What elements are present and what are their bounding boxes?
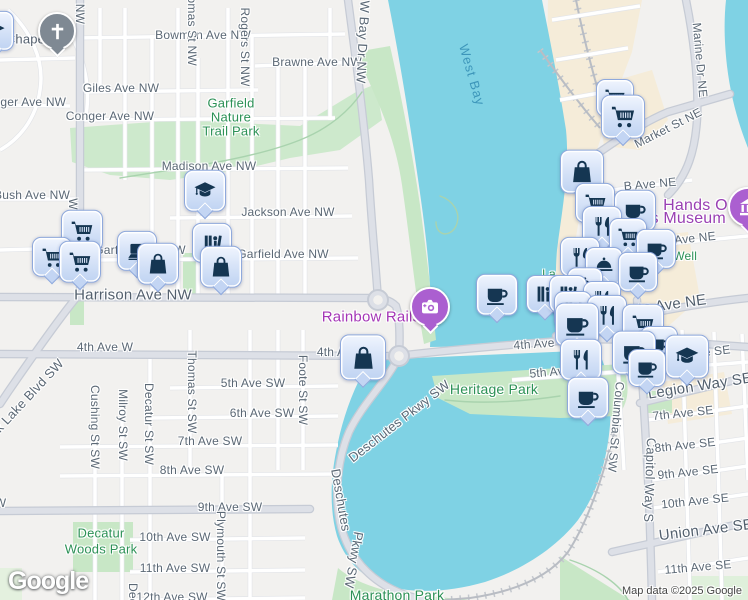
coffee-icon bbox=[575, 385, 601, 411]
poi-marker-grad[interactable] bbox=[184, 170, 226, 217]
bag-icon bbox=[349, 343, 378, 372]
poi-marker-coffee[interactable] bbox=[567, 377, 609, 424]
camera-icon bbox=[418, 295, 442, 319]
map-canvas[interactable]: Bowman Ave NWBrawne Ave NWGiles Ave NWCo… bbox=[0, 0, 748, 600]
bag-icon bbox=[568, 158, 596, 186]
poi-marker-grad[interactable] bbox=[0, 11, 14, 56]
bag-icon bbox=[208, 254, 234, 280]
grad-icon bbox=[673, 343, 701, 371]
cart-icon bbox=[67, 249, 93, 275]
map-base-layer bbox=[0, 0, 748, 600]
poi-marker-cart[interactable] bbox=[59, 241, 101, 288]
poi-marker-bag[interactable] bbox=[340, 334, 386, 385]
coffee-icon bbox=[563, 311, 591, 339]
coffee-icon bbox=[626, 259, 651, 284]
poi-pin-museum[interactable] bbox=[728, 187, 748, 232]
poi-marker-cart[interactable] bbox=[601, 95, 645, 144]
poi-marker-coffee[interactable] bbox=[628, 349, 666, 392]
cross-icon bbox=[46, 20, 69, 43]
poi-pin-cross[interactable] bbox=[38, 12, 76, 55]
grad-icon bbox=[192, 178, 218, 204]
poi-pin-camera[interactable] bbox=[410, 287, 450, 332]
museum-icon bbox=[736, 195, 748, 219]
fork-icon bbox=[568, 347, 594, 373]
poi-marker-bag[interactable] bbox=[200, 246, 242, 293]
poi-marker-coffee[interactable] bbox=[618, 252, 658, 297]
grad-icon bbox=[0, 18, 7, 43]
coffee-icon bbox=[635, 356, 659, 380]
bag-icon bbox=[145, 251, 171, 277]
poi-marker-bag[interactable] bbox=[137, 243, 179, 290]
google-logo[interactable]: Google bbox=[8, 567, 88, 596]
coffee-icon bbox=[484, 282, 510, 308]
poi-marker-coffee[interactable] bbox=[476, 274, 518, 321]
map-attribution: Map data ©2025 Google bbox=[622, 585, 742, 597]
poi-marker-grad[interactable] bbox=[665, 335, 709, 384]
cart-icon bbox=[609, 103, 637, 131]
